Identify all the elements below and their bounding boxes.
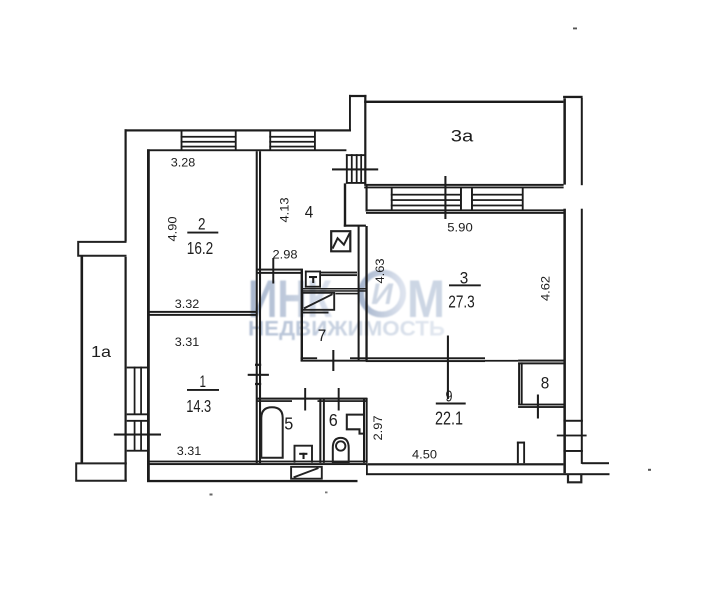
svg-text:3.28: 3.28 [171, 156, 196, 170]
svg-text:22.1: 22.1 [435, 408, 463, 429]
svg-text:3.32: 3.32 [175, 297, 200, 311]
svg-text:4.13: 4.13 [277, 197, 291, 222]
svg-text:14.3: 14.3 [186, 396, 211, 416]
svg-text:1: 1 [199, 372, 206, 391]
svg-text:3a: 3a [451, 128, 475, 146]
svg-text:8: 8 [541, 373, 550, 392]
svg-text:1a: 1a [91, 344, 111, 361]
svg-text:7: 7 [318, 326, 327, 345]
svg-text:2.97: 2.97 [371, 415, 385, 440]
svg-text:НЕДВИЖИМОСТЬ: НЕДВИЖИМОСТЬ [248, 317, 445, 341]
svg-text:5: 5 [284, 413, 293, 433]
svg-text:4.62: 4.62 [539, 276, 553, 301]
svg-text:5.90: 5.90 [447, 220, 473, 234]
svg-text:4.50: 4.50 [412, 448, 437, 462]
svg-text:2.98: 2.98 [273, 248, 298, 262]
svg-text:6: 6 [329, 410, 338, 430]
svg-text:4.63: 4.63 [373, 258, 387, 283]
svg-text:2: 2 [198, 215, 206, 234]
svg-text:3.31: 3.31 [177, 444, 202, 458]
svg-text:16.2: 16.2 [187, 238, 214, 258]
svg-text:4: 4 [305, 202, 314, 221]
svg-text:4.90: 4.90 [166, 216, 180, 241]
svg-text:27.3: 27.3 [448, 291, 475, 311]
svg-text:3.31: 3.31 [175, 335, 200, 349]
